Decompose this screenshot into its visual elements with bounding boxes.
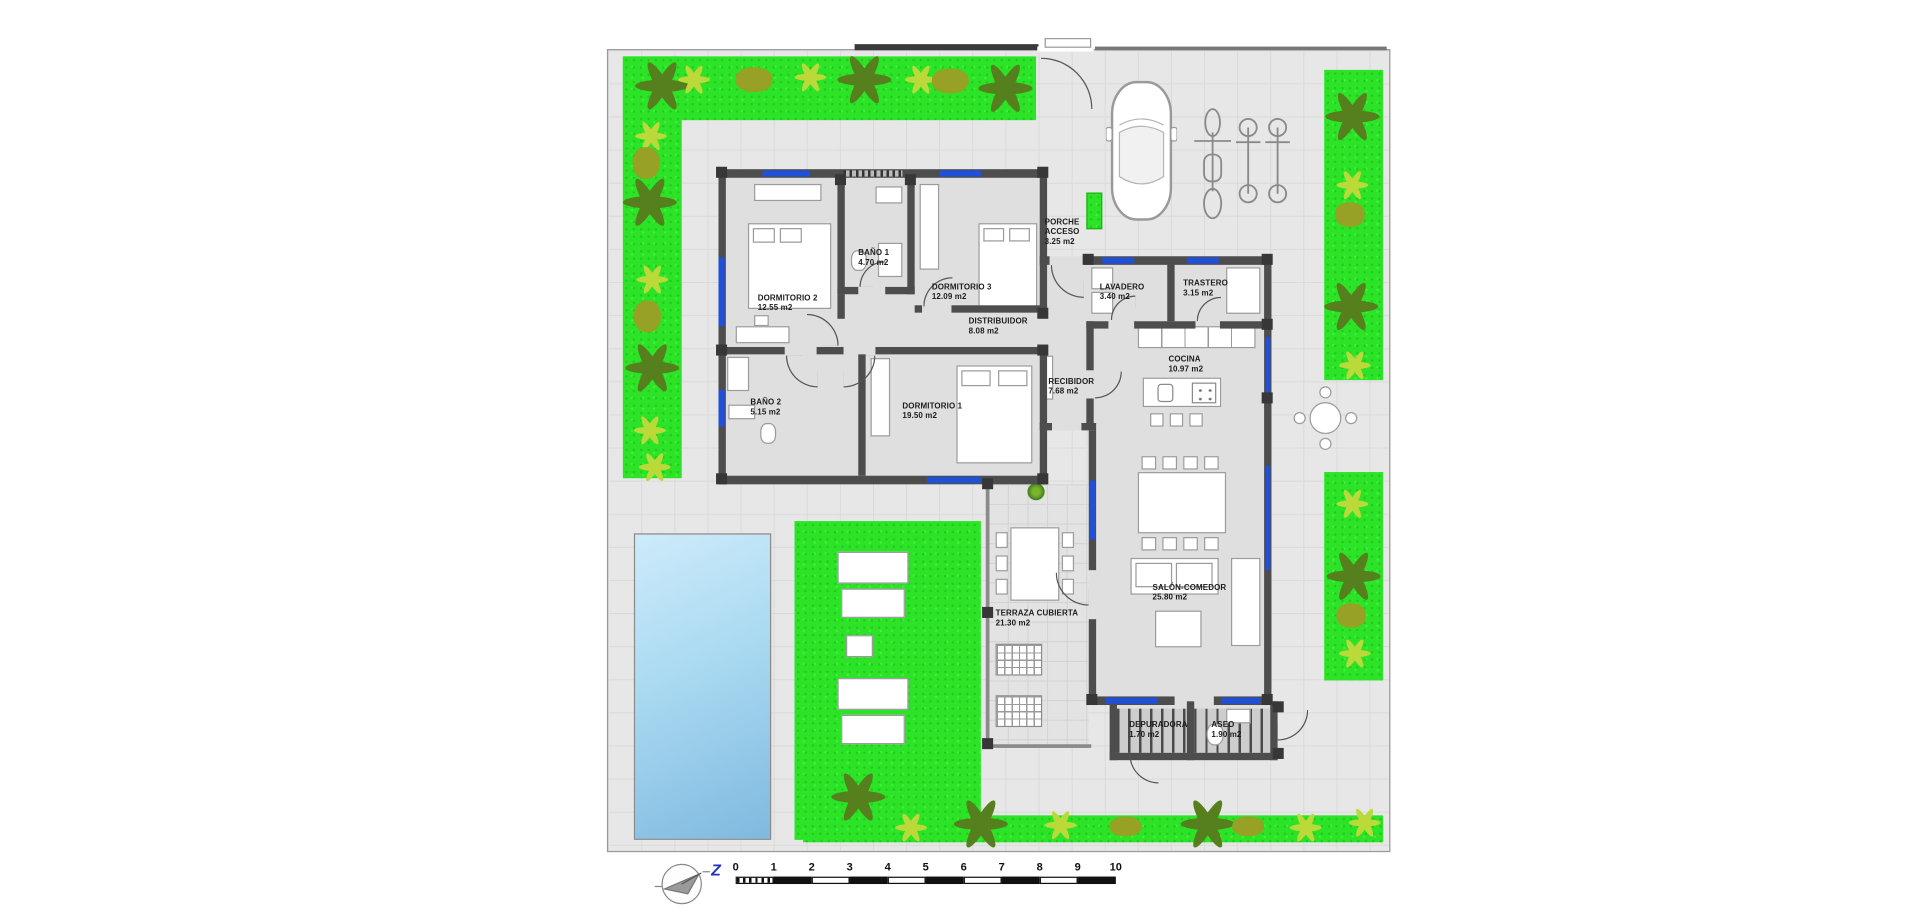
shrub — [932, 69, 969, 94]
palm-tree — [831, 770, 885, 824]
chair — [996, 555, 1008, 571]
grate — [996, 695, 1043, 727]
wall — [951, 305, 1047, 312]
chair — [1183, 456, 1198, 469]
scale-tick-label: 2 — [809, 861, 815, 873]
terrace-post — [982, 478, 993, 489]
chair — [1294, 412, 1306, 424]
wall-joint — [1262, 694, 1273, 705]
swimming-pool — [634, 533, 771, 840]
pillow — [780, 228, 802, 243]
shrub-burst — [636, 264, 668, 296]
chair — [1183, 537, 1198, 550]
wall-joint — [716, 473, 727, 484]
room-label-dormitorio1: DORMITORIO 119.50 m2 — [902, 402, 962, 422]
chair — [1162, 456, 1177, 469]
room-label-dormitorio2: DORMITORIO 212.55 m2 — [758, 294, 818, 314]
motorbike — [1192, 108, 1234, 221]
chair — [996, 579, 1008, 595]
shrub — [1232, 817, 1264, 837]
vent-hatch — [844, 170, 903, 176]
chair — [1141, 456, 1156, 469]
sun-lounger — [841, 589, 905, 618]
wall — [837, 177, 844, 295]
potted-plant — [1027, 483, 1044, 500]
scale-bar-segment — [1078, 877, 1116, 884]
palm-tree — [978, 61, 1032, 115]
wall — [885, 287, 914, 294]
scale-bar-segment — [926, 877, 964, 884]
scale-tick-label: 9 — [1075, 861, 1081, 873]
storage-shelf — [1226, 267, 1260, 314]
chair — [1162, 537, 1177, 550]
wall — [1110, 701, 1117, 760]
room-label-aseo: ASEO1.90 m2 — [1211, 721, 1241, 741]
window — [1090, 481, 1095, 540]
shrub-burst — [895, 812, 927, 844]
wall — [837, 287, 858, 294]
window — [927, 477, 981, 483]
shrub — [634, 300, 661, 332]
terrace-table — [1010, 527, 1059, 601]
hob — [1192, 383, 1217, 404]
kitchen-counter — [1138, 326, 1256, 348]
wall — [718, 169, 725, 484]
scale-bar-segment — [964, 877, 1002, 884]
sink — [1157, 384, 1173, 402]
shrub-burst — [1339, 638, 1371, 670]
palm-tree — [625, 341, 679, 395]
shrub-burst — [1336, 169, 1368, 201]
wall-joint — [1086, 694, 1097, 705]
scale-tick-label: 6 — [961, 861, 967, 873]
wall — [1167, 264, 1174, 322]
wall-joint — [905, 174, 916, 185]
scale-bar-segment — [812, 877, 850, 884]
wall — [718, 476, 1047, 485]
floor-plan-canvas: DORMITORIO 212.55 m2 BAÑO 14.70 m2 DORMI… — [0, 0, 1920, 920]
window — [1265, 466, 1270, 570]
wall-joint — [1262, 392, 1273, 403]
shrub — [1110, 817, 1142, 837]
shrub-burst — [795, 61, 827, 93]
pillow — [961, 370, 990, 386]
car — [1106, 76, 1177, 226]
window — [718, 390, 724, 427]
sun-lounger — [837, 678, 908, 710]
shrub — [633, 147, 660, 179]
window — [1106, 698, 1157, 704]
toilet — [760, 423, 776, 444]
chair — [1204, 537, 1219, 550]
palm-tree — [1327, 549, 1381, 603]
room-label-trastero: TRASTERO3.15 m2 — [1183, 280, 1228, 300]
compass-letter: Z — [711, 861, 721, 879]
sun-lounger — [841, 715, 905, 744]
wall — [1040, 347, 1047, 484]
scale-bar-segment — [1002, 877, 1040, 884]
scale-tick-label: 5 — [923, 861, 929, 873]
scale-bar-segment — [850, 877, 888, 884]
boundary-wall-thick — [855, 44, 1039, 50]
pillow — [753, 228, 775, 243]
wall — [1134, 321, 1195, 328]
scale-tick-label: 10 — [1110, 861, 1122, 873]
scale-bar-segment — [1040, 877, 1078, 884]
scale-bar: 0 1 2 3 4 5 6 7 8 9 10 — [736, 861, 1128, 888]
palm-tree — [1324, 280, 1378, 334]
chair — [1319, 386, 1331, 398]
scale-tick-label: 7 — [999, 861, 1005, 873]
wall-joint — [716, 345, 727, 356]
window — [1187, 257, 1219, 263]
room-label-terraza: TERRAZA CUBIERTA21.30 m2 — [996, 609, 1079, 629]
chair — [996, 532, 1008, 548]
terrace-post — [982, 738, 993, 749]
wall — [1040, 423, 1052, 430]
shrub-burst — [1349, 807, 1381, 839]
patio-table — [1309, 402, 1341, 434]
wall-joint — [1262, 319, 1273, 330]
wall — [915, 305, 922, 312]
wall — [907, 177, 914, 295]
bicycles — [1236, 113, 1295, 211]
wall — [1187, 701, 1194, 760]
chair — [1319, 438, 1331, 450]
chair — [1062, 555, 1074, 571]
chaise — [1231, 558, 1260, 646]
grate — [996, 644, 1043, 676]
shrub — [1336, 603, 1365, 628]
wall — [817, 347, 844, 354]
scale-bar-segment — [888, 877, 926, 884]
wall — [1081, 423, 1096, 430]
garden-table — [846, 635, 873, 657]
shower — [727, 357, 749, 391]
wardrobe — [871, 358, 891, 436]
gate-leaf — [1045, 38, 1092, 48]
compass-icon: Z — [652, 856, 733, 912]
scale-tick-label: 1 — [771, 861, 777, 873]
scale-tick-label: 0 — [733, 861, 739, 873]
window — [718, 257, 724, 326]
wall — [875, 347, 1039, 354]
shrub-burst — [1339, 349, 1371, 381]
window — [939, 170, 981, 176]
shrub — [1335, 202, 1364, 227]
room-label-bano2: BAÑO 25.15 m2 — [750, 398, 781, 418]
shrub-burst — [1045, 809, 1077, 841]
chair — [1062, 532, 1074, 548]
wall-joint — [1083, 254, 1094, 265]
hedge — [1086, 192, 1102, 229]
palm-tree — [837, 53, 891, 107]
wardrobe — [920, 184, 940, 270]
window — [763, 170, 810, 176]
vanity — [875, 186, 902, 203]
palm-tree — [623, 175, 677, 229]
wall — [1040, 256, 1050, 265]
wall — [837, 294, 844, 319]
room-label-bano1: BAÑO 14.70 m2 — [858, 249, 889, 269]
palm-tree — [1181, 797, 1235, 851]
wall-joint — [1037, 345, 1048, 356]
chair — [1345, 412, 1357, 424]
stool — [1170, 413, 1183, 426]
room-label-porche: PORCHE ACCESO3.25 m2 — [1045, 218, 1087, 248]
wall-joint — [1273, 748, 1284, 759]
wall-joint — [1037, 167, 1048, 178]
shrub-burst — [1336, 488, 1368, 520]
dining-table — [1138, 472, 1226, 533]
chair — [754, 315, 769, 326]
room-label-lavadero: LAVADERO3.40 m2 — [1100, 283, 1145, 303]
shrub-burst — [1290, 812, 1322, 844]
scale-tick-label: 3 — [847, 861, 853, 873]
shrub — [736, 67, 773, 92]
wall-joint — [835, 174, 846, 185]
wall-joint — [1037, 308, 1048, 319]
stool — [1150, 413, 1163, 426]
wall-joint — [716, 167, 727, 178]
scale-bar-segment — [774, 877, 812, 884]
terrace-post — [982, 607, 993, 618]
desk — [736, 326, 790, 343]
chair — [1141, 537, 1156, 550]
wall — [1089, 619, 1096, 705]
shrub-burst — [634, 414, 666, 446]
window — [1221, 698, 1260, 704]
pillow — [998, 370, 1027, 386]
window — [1102, 257, 1134, 263]
wall-joint — [1037, 473, 1048, 484]
pillow — [983, 228, 1004, 241]
room-label-dormitorio3: DORMITORIO 312.09 m2 — [932, 283, 992, 303]
room-label-distribuidor: DISTRIBUIDOR8.08 m2 — [969, 318, 1028, 338]
palm-tree — [954, 797, 1008, 851]
boundary-wall — [1095, 47, 1387, 51]
scale-tick-label: 8 — [1037, 861, 1043, 873]
coffee-table — [1155, 611, 1202, 648]
room-label-salon: SALÓN-COMEDOR25.80 m2 — [1153, 584, 1227, 604]
room-label-recibidor: RECIBIDOR7.68 m2 — [1048, 378, 1094, 398]
shrub-burst — [639, 451, 671, 483]
window — [1265, 337, 1270, 398]
terrace-edge — [986, 744, 1091, 748]
room-label-depuradora: DEPURADORA1.70 m2 — [1129, 721, 1187, 741]
scale-bar-segment — [736, 877, 774, 884]
sun-lounger — [837, 552, 908, 584]
palm-tree — [1325, 90, 1379, 144]
wardrobe — [754, 184, 821, 201]
scale-tick-label: 4 — [885, 861, 891, 873]
room-label-cocina: COCINA10.97 m2 — [1168, 356, 1203, 376]
wall-joint — [1262, 254, 1273, 265]
wall — [726, 347, 785, 354]
chair — [1204, 456, 1219, 469]
shrub-burst — [678, 64, 710, 96]
pillow — [1009, 228, 1030, 241]
stool — [1189, 413, 1202, 426]
wall — [1086, 321, 1093, 370]
